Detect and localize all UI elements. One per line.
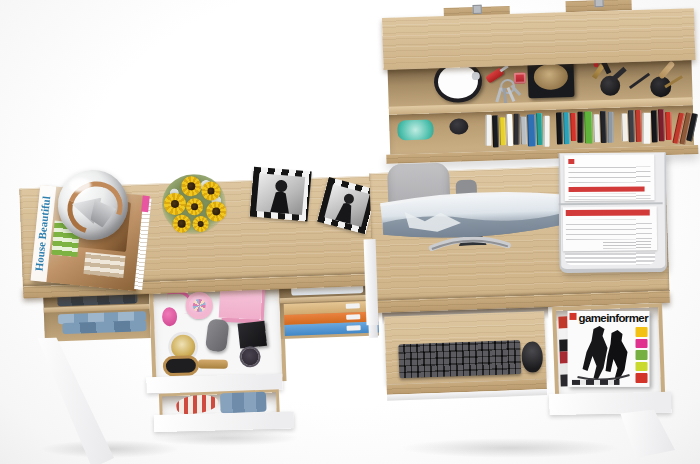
- repeated-item: [658, 109, 665, 141]
- repeated-item: [513, 114, 519, 145]
- vanity-desk: House Beautiful: [19, 158, 386, 464]
- repeated-item: [544, 116, 550, 147]
- tray-divider-wire: [559, 202, 663, 205]
- paper-text-lines: [566, 219, 652, 240]
- repeated-item: [636, 350, 648, 360]
- repeated-item: [499, 117, 506, 145]
- document-tray: [558, 152, 667, 273]
- repeated-item: [563, 112, 570, 144]
- paper-red-band: [569, 186, 645, 192]
- curved-monitor: [376, 182, 572, 243]
- folded-jeans: [220, 392, 267, 414]
- magazine-drawer: gameinformer: [552, 303, 665, 401]
- paper-stack-edges: [565, 252, 655, 265]
- cream-jar: [171, 334, 196, 359]
- paper-red-band: [566, 209, 650, 216]
- repeated-item: [520, 116, 527, 144]
- repeated-item: [584, 111, 593, 143]
- cosmetics-drawer: [149, 285, 286, 386]
- repeated-item: [527, 114, 536, 146]
- keychain-fob: [514, 72, 526, 83]
- paper-text-lines: [568, 166, 650, 183]
- wall-shelf: [382, 0, 699, 165]
- paper-sheet: [564, 154, 654, 201]
- repeated-item: [556, 112, 563, 144]
- bracket-hook-icon: [594, 0, 603, 7]
- denim-stack: [62, 320, 146, 334]
- repeated-item: [593, 114, 600, 142]
- box-handle: [347, 325, 361, 331]
- gameinformer-magazine: gameinformer: [568, 311, 650, 387]
- repeated-item: [635, 110, 642, 142]
- cover-caption-block: [83, 252, 125, 278]
- compact-case: [238, 321, 268, 349]
- makeup-pouch: [205, 318, 230, 352]
- paper-logo-red: [568, 159, 574, 164]
- cover-thumbnail-strip: [636, 327, 648, 383]
- repeated-item: [636, 373, 648, 383]
- mouse: [521, 341, 543, 373]
- repeated-item: [651, 110, 658, 142]
- computer-desk: gameinformer: [355, 145, 686, 464]
- paper-table-lines: [569, 193, 651, 200]
- paper-sheet: [563, 206, 657, 251]
- sunflower-bouquet: [161, 173, 227, 235]
- hairbrush-handle: [198, 359, 228, 368]
- repeated-item: [636, 339, 648, 349]
- drawer-front: [154, 411, 294, 432]
- cover-bottom-caption: [572, 380, 620, 385]
- key: [495, 87, 502, 102]
- repeated-item: [665, 112, 672, 140]
- glass-ashtray: [397, 119, 434, 140]
- product-render: House Beautiful: [0, 0, 700, 464]
- repeated-item: [600, 111, 607, 143]
- desk-leg: [29, 335, 120, 464]
- dark-jar: [449, 118, 468, 135]
- shelf-top-board: [382, 8, 695, 70]
- bracket-hook-icon: [473, 5, 482, 14]
- repeated-item: [642, 113, 650, 144]
- portrait-illustration: [256, 173, 305, 215]
- repeated-item: [492, 115, 499, 147]
- small-jar: [241, 348, 259, 366]
- repeated-item: [485, 115, 491, 146]
- book-row: [485, 108, 694, 149]
- repeated-item: [636, 327, 648, 337]
- cover-red-tag: [570, 313, 577, 320]
- repeated-item: [628, 110, 635, 142]
- mascara-wand: [629, 73, 650, 89]
- repeated-item: [536, 113, 543, 145]
- sunflower: [206, 201, 227, 222]
- keyboard: [398, 340, 521, 378]
- repeated-item: [558, 316, 567, 328]
- box-handle: [346, 314, 360, 320]
- repeated-item: [636, 362, 648, 372]
- photo-frame-left: [250, 167, 312, 222]
- repeated-item: [506, 114, 513, 146]
- repeated-item: [607, 112, 613, 143]
- magazine-masthead: gameinformer: [579, 312, 649, 324]
- box-handle: [346, 303, 360, 309]
- cover-figures: [572, 325, 634, 385]
- desk-leg: [616, 409, 676, 459]
- brush-handle: [658, 60, 675, 79]
- striped-shirt: [175, 392, 219, 416]
- framed-photo: [256, 173, 305, 215]
- hairbrush-bristles: [166, 358, 196, 373]
- repeated-item: [570, 113, 577, 141]
- repeated-item: [577, 112, 583, 143]
- paper-text-lines: [603, 240, 651, 248]
- repeated-item: [621, 113, 628, 141]
